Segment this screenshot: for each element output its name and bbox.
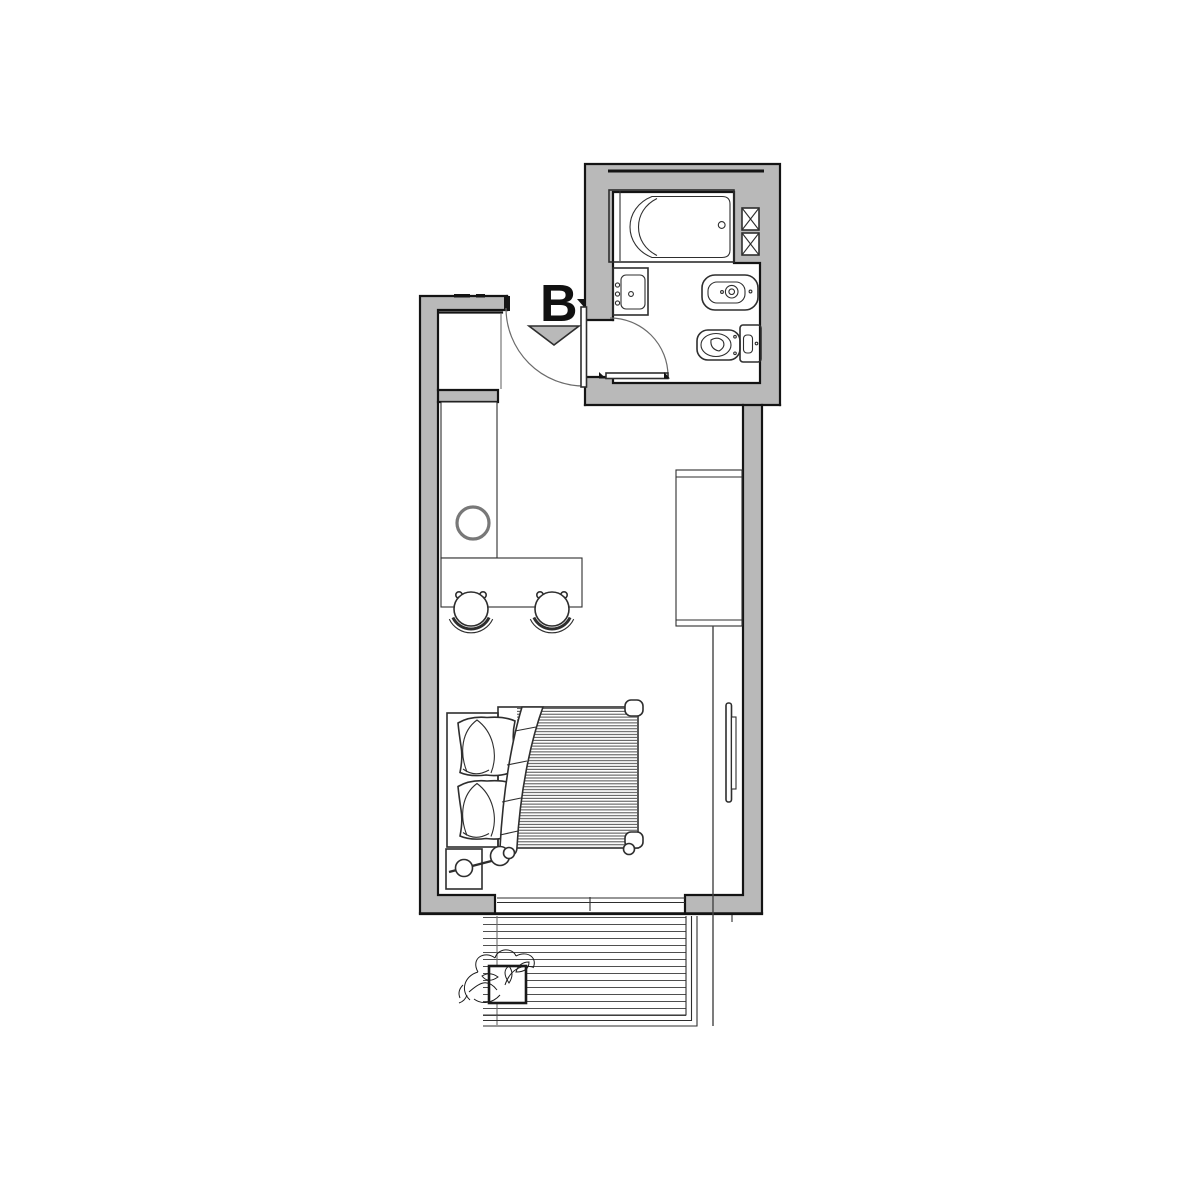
tv [726, 703, 736, 802]
floor-plan-drawing: B [0, 0, 1200, 1200]
left-wall [420, 296, 438, 914]
floor-plan-canvas: B [0, 0, 1200, 1200]
bathroom-top-wall [585, 164, 780, 192]
kitchen-sink [457, 507, 489, 539]
bathroom-door [599, 318, 670, 379]
bidet-faucet [725, 285, 738, 298]
tub-drain [718, 222, 725, 229]
right-wall [743, 400, 762, 914]
balcony [459, 915, 732, 1026]
entry-jamb-mark [504, 296, 510, 311]
bidet [702, 275, 758, 310]
toilet-flush [711, 338, 724, 351]
toilet [697, 325, 761, 362]
sink-faucet [629, 292, 634, 297]
bed-area [446, 700, 643, 889]
bathroom-bottom-wall [585, 383, 780, 405]
shaft-box-1 [742, 208, 759, 230]
wardrobe [676, 470, 742, 626]
sliding-balcony-door [497, 897, 685, 911]
wall-tick [476, 294, 485, 298]
vanity-sink [613, 268, 648, 315]
shaft-box-2 [742, 233, 759, 255]
entry-hinge-mark [577, 299, 584, 307]
bathtub [609, 190, 734, 262]
bathroom-right-wall [760, 164, 780, 405]
pillow-pair-1 [458, 717, 515, 775]
unit-label: B [540, 275, 578, 333]
entry-closet [440, 313, 502, 390]
bottom-wall-right [685, 895, 762, 914]
bottom-wall-left [420, 895, 495, 914]
kitchen-wall-stub [438, 390, 498, 402]
wall-tick [454, 294, 470, 298]
entry: B [440, 275, 587, 389]
toilet-bowl [697, 330, 740, 360]
kitchen [441, 402, 582, 633]
entry-door-leaf [581, 307, 587, 387]
